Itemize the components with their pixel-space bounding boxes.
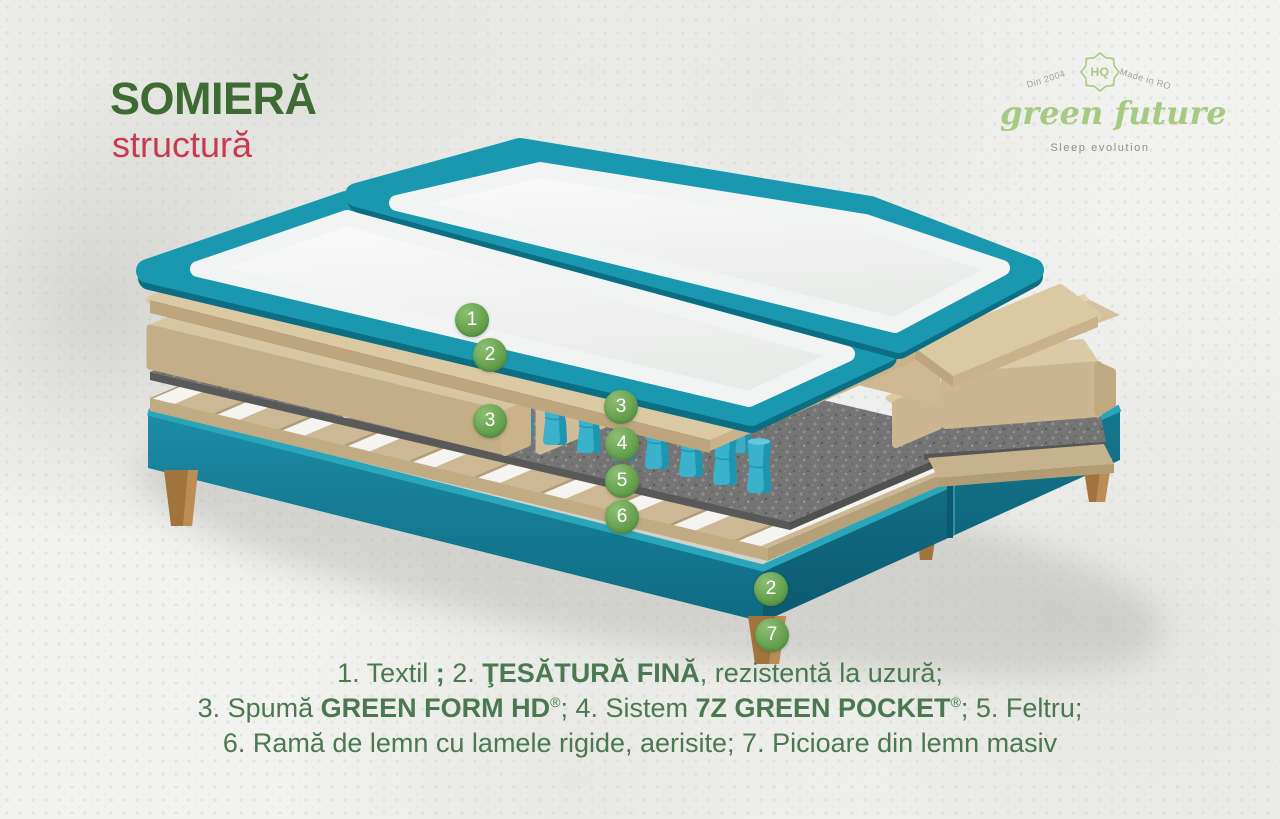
- title-block: SOMIERĂ structură: [110, 76, 317, 163]
- hq-badge-icon: HQ: [1080, 50, 1120, 96]
- layer-marker-3-left: 3: [473, 404, 507, 438]
- layer-marker-7: 7: [755, 618, 789, 652]
- layer-marker-5: 5: [605, 464, 639, 498]
- page-subtitle: structură: [112, 127, 317, 163]
- brand-name: green future: [1000, 94, 1200, 132]
- layer-marker-3-right: 3: [604, 390, 638, 424]
- layer-marker-2: 2: [473, 338, 507, 372]
- badge-label: HQ: [1080, 65, 1120, 79]
- page: SOMIERĂ structură Din 2004 HQ Made in RO…: [0, 0, 1280, 819]
- layer-marker-4: 4: [605, 427, 639, 461]
- legend-line: 3. Spumă GREEN FORM HD®; 4. Sistem 7Z GR…: [0, 691, 1280, 726]
- layer-marker-2b: 2: [754, 572, 788, 606]
- page-title: SOMIERĂ: [110, 76, 317, 123]
- legend: 1. Textil ; 2. ŢESĂTURĂ FINĂ, rezistentă…: [0, 656, 1280, 761]
- brand-tagline: Sleep evolution: [1000, 142, 1200, 154]
- layer-marker-1: 1: [455, 303, 489, 337]
- legend-line: 1. Textil ; 2. ŢESĂTURĂ FINĂ, rezistentă…: [0, 656, 1280, 691]
- layer-marker-6: 6: [605, 500, 639, 534]
- legend-line: 6. Ramă de lemn cu lamele rigide, aerisi…: [0, 726, 1280, 761]
